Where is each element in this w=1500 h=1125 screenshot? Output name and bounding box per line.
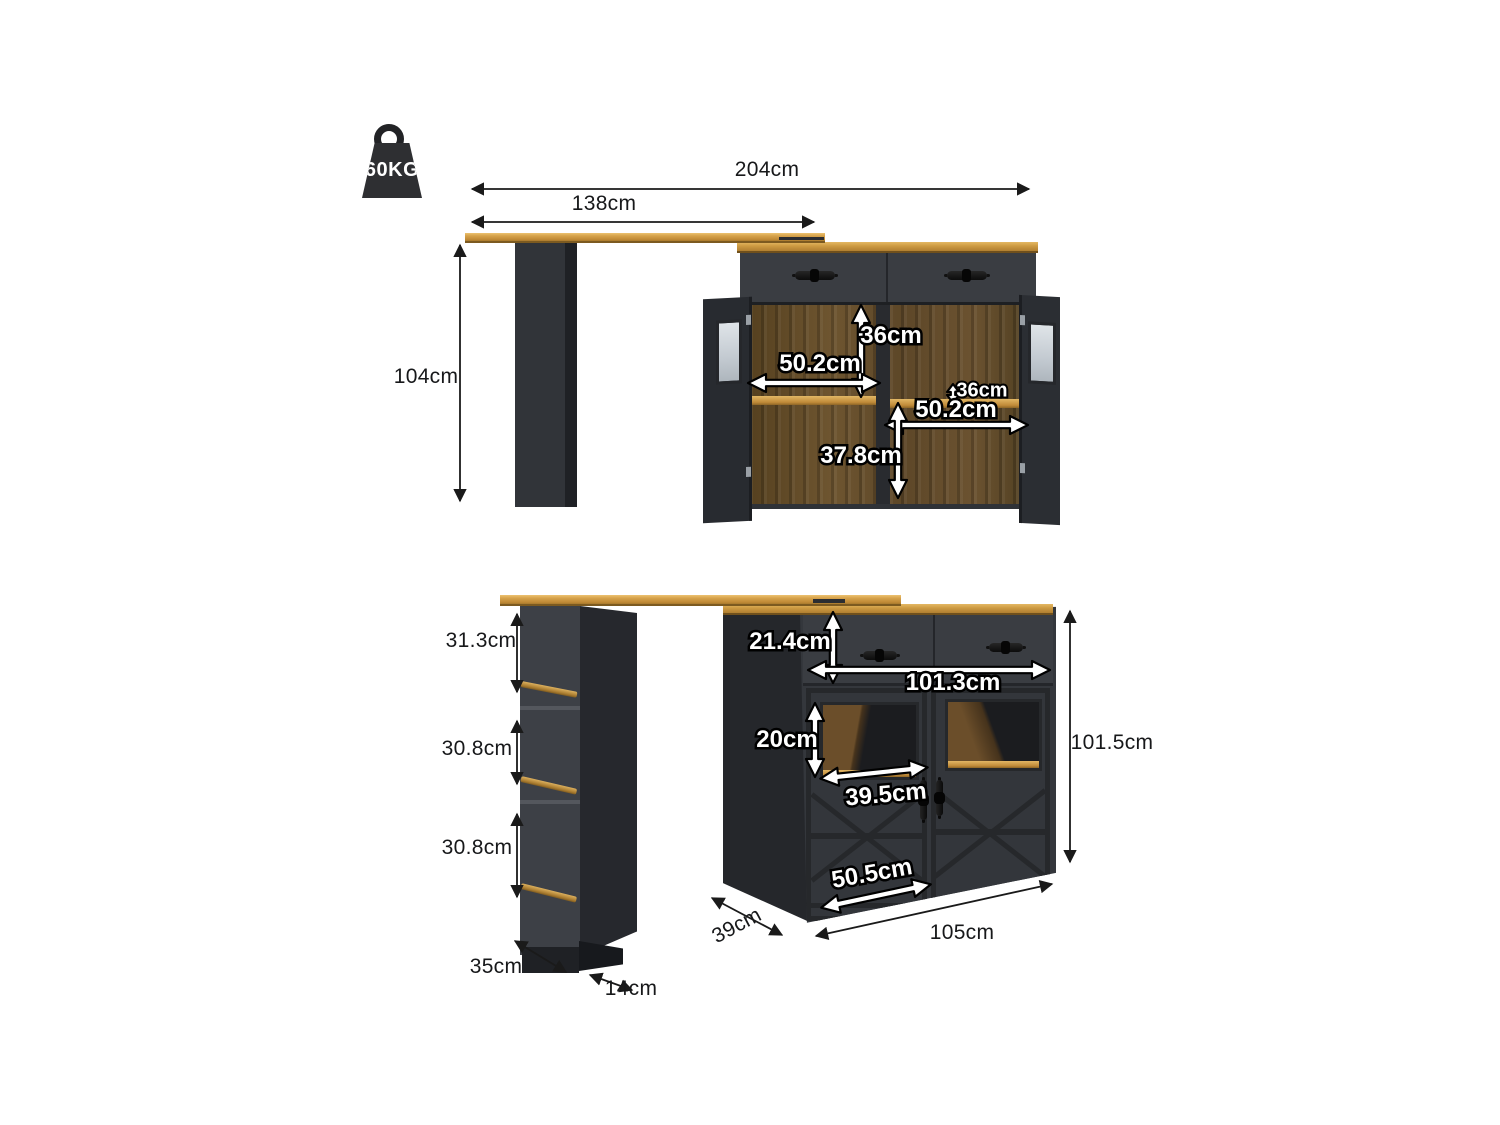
dim-shelf-bottom: 30.8cm <box>442 836 513 860</box>
dim-tabletop-width: 138cm <box>572 192 637 216</box>
weight-label: 60KG <box>365 159 419 182</box>
drawer-handle-icon <box>947 271 987 280</box>
dim-drawer-height: 21.4cm <box>749 628 830 656</box>
drawer-handle-icon <box>989 643 1023 652</box>
hinge-icon <box>1020 315 1025 325</box>
dim-bottom-section-height: 37.8cm <box>820 442 901 470</box>
door-mid-rail <box>936 829 1045 835</box>
door-bottom-rail <box>936 897 1045 902</box>
door-handle-icon <box>936 780 943 816</box>
dim-window-height: 20cm <box>756 726 817 754</box>
weight-icon: 60KG <box>362 143 422 198</box>
shelf-edge <box>520 706 580 710</box>
door-bottom-rail <box>811 903 922 908</box>
hinge-icon <box>746 467 751 477</box>
window-shelf-sliver <box>823 770 916 777</box>
door-mid-rail <box>811 833 922 839</box>
dim-left-section-width: 50.2cm <box>779 350 860 378</box>
drawer-seam <box>886 251 888 302</box>
cabinet-wood-top <box>737 242 1038 253</box>
bar-leg-side <box>565 241 577 507</box>
dim-column-depth: 35cm <box>470 955 523 979</box>
barn-door-right <box>931 688 1050 916</box>
door-window <box>945 699 1042 771</box>
bar-leg-front <box>515 241 565 507</box>
door-glass-pane <box>1028 321 1056 384</box>
hinge-icon <box>1020 463 1025 473</box>
weight-capacity-badge: 60KG <box>355 118 430 200</box>
dim-shelf-top: 31.3cm <box>446 629 517 653</box>
shelf-edge <box>520 800 580 804</box>
product-dimension-diagram: 60KG <box>0 0 1500 1125</box>
dim-column-width: 14cm <box>605 977 658 1001</box>
drawer-handle-icon <box>795 271 835 280</box>
dim-height: 104cm <box>394 365 459 389</box>
dim-interior-width: 101.3cm <box>906 669 1001 697</box>
open-door-left <box>703 297 752 524</box>
cabinet-side-panel <box>723 610 807 924</box>
dim-shelf-middle: 30.8cm <box>442 737 513 761</box>
shelf-column-side <box>580 606 637 956</box>
dim-cabinet-width: 105cm <box>930 921 995 945</box>
open-door-right <box>1019 295 1060 525</box>
door-window <box>820 702 919 780</box>
dim-right-section-width: 50.2cm <box>915 396 996 424</box>
dim-cabinet-height: 101.5cm <box>1071 731 1154 755</box>
door-glass-pane <box>716 319 742 384</box>
pivot-joint <box>779 237 824 240</box>
column-plinth-front <box>522 947 579 973</box>
dim-left-section-height: 36cm <box>860 322 921 350</box>
cabinet-shelf-left <box>747 396 876 405</box>
pivot-joint <box>813 599 845 603</box>
bar-tabletop <box>465 233 825 243</box>
hinge-icon <box>746 315 751 325</box>
dim-total-width: 204cm <box>735 158 800 182</box>
drawer-handle-icon <box>863 651 897 660</box>
window-shelf-sliver <box>948 761 1039 768</box>
dim-cabinet-depth: 39cm <box>708 903 766 949</box>
drawer-band <box>740 251 1036 305</box>
column-plinth-side <box>579 941 623 971</box>
